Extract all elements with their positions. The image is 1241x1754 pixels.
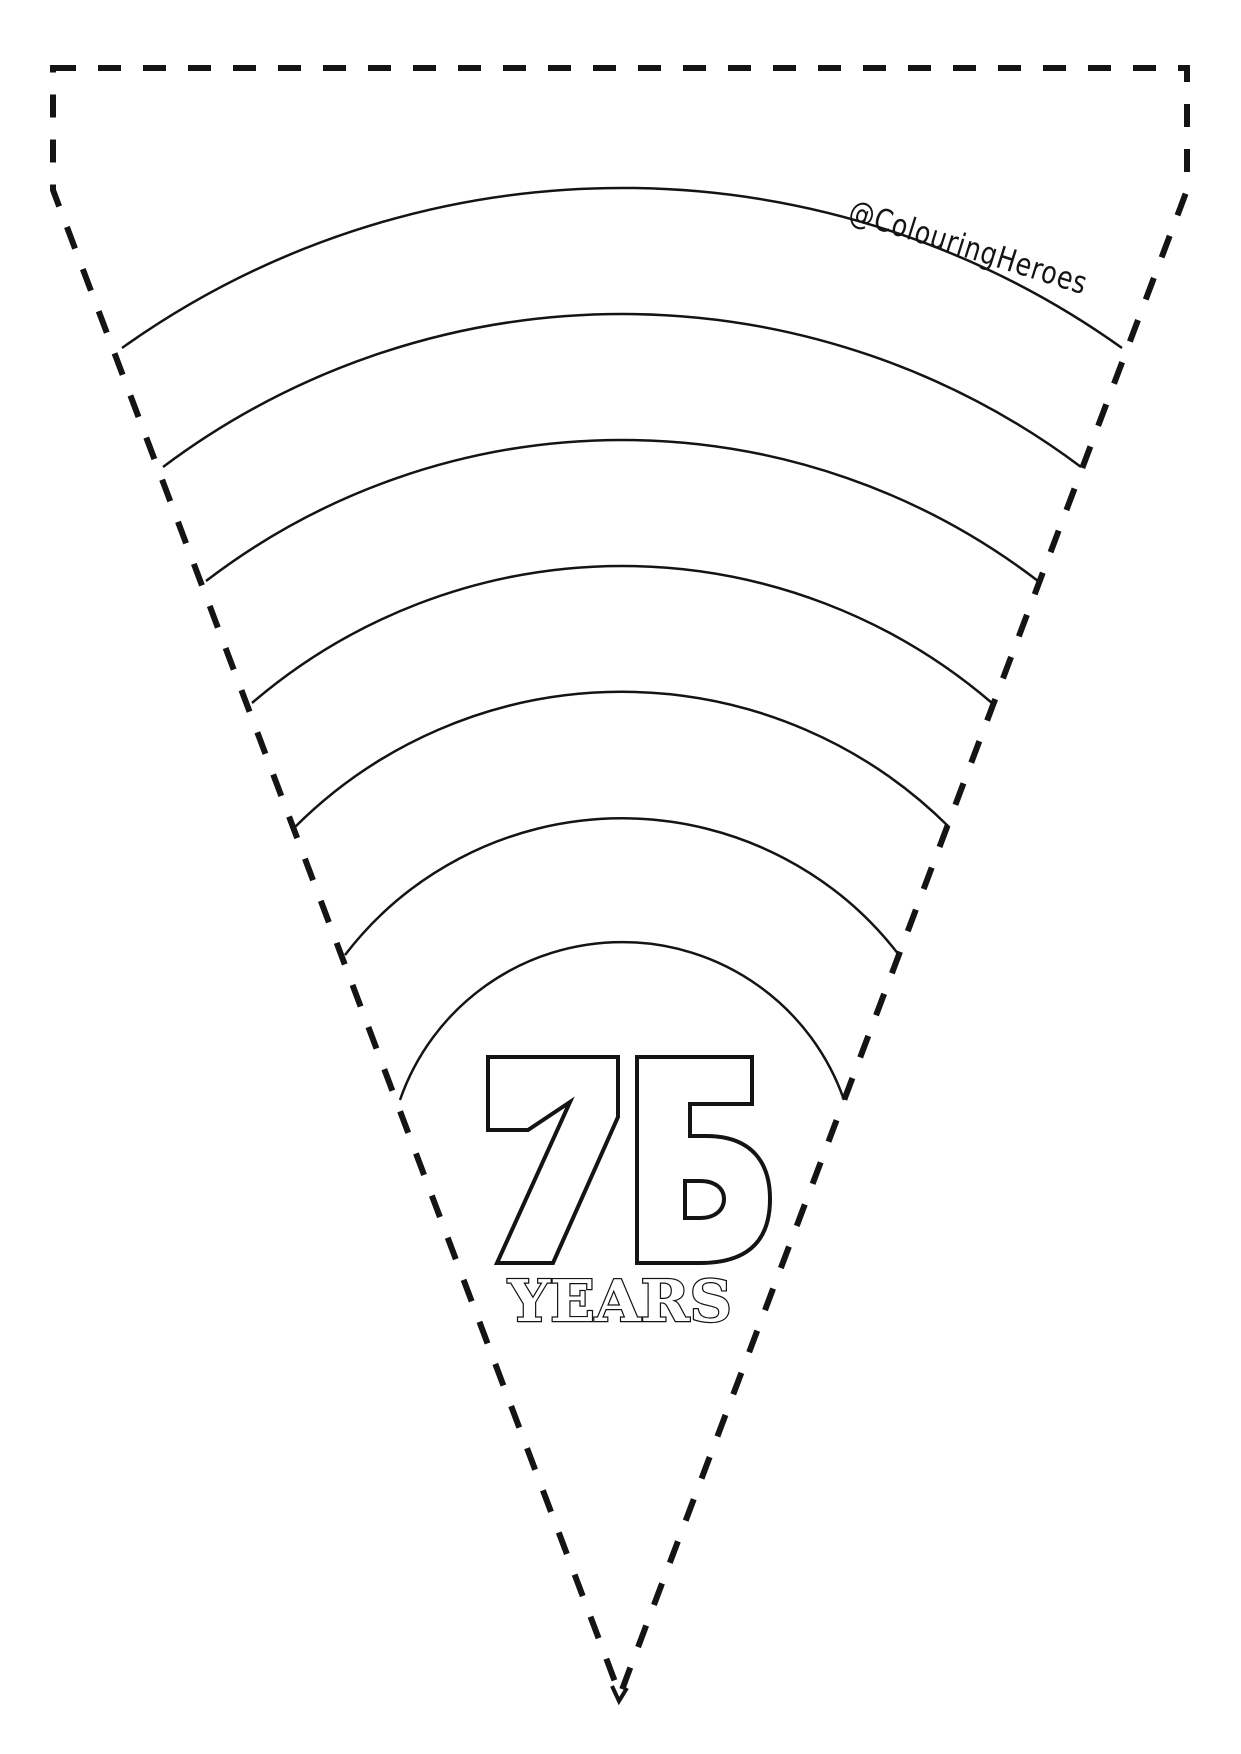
badge-number-7-shape	[488, 1057, 618, 1263]
badge-number-5-shape	[637, 1057, 770, 1263]
rainbow-arc-5	[295, 692, 949, 827]
rainbow-arc-7	[400, 942, 844, 1100]
badge-years-label: YEARS	[507, 1268, 732, 1335]
rainbow-arc-1	[122, 188, 1122, 348]
cut-line-border	[53, 68, 1187, 1695]
anniversary-badge: 75 YEARS	[488, 1057, 770, 1335]
rainbow-arcs	[122, 188, 1122, 1100]
rainbow-arc-3	[206, 440, 1038, 581]
rainbow-arc-4	[252, 566, 992, 703]
rainbow-arc-2	[163, 314, 1081, 467]
pennant-svg: 75 YEARS @ColouringHeroes	[0, 0, 1241, 1754]
rainbow-arc-6	[345, 818, 899, 955]
watermark-handle: @ColouringHeroes	[845, 193, 1092, 302]
bottom-point-mark	[612, 1686, 627, 1701]
colouring-page: 75 YEARS @ColouringHeroes 75	[0, 0, 1241, 1754]
